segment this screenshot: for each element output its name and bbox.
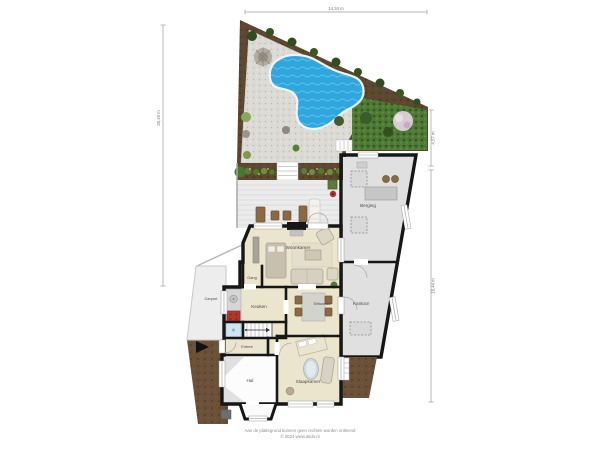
- room-label-hal: Hal: [247, 378, 254, 383]
- light-green-bush: [241, 112, 251, 122]
- hedge-bush: [383, 127, 393, 137]
- skylight-marker: [351, 217, 367, 233]
- armchair: [327, 268, 338, 280]
- sink-drain: [233, 298, 235, 300]
- shelf: [357, 162, 367, 168]
- room-label-carport: Carport: [205, 296, 219, 301]
- room-label-entree: Entree: [241, 344, 252, 349]
- footer-disclaimer: Aan de plattegrond kunnen geen rechten w…: [245, 428, 356, 433]
- gray-plant: [282, 126, 290, 134]
- terrace-chair: [271, 211, 279, 220]
- garden-steps-upper: [336, 140, 352, 151]
- room-label-eetkamer: Eetkamer: [314, 301, 331, 306]
- sofa-pillow: [268, 246, 275, 252]
- carport-floor: [187, 266, 226, 340]
- stool: [392, 176, 399, 183]
- green-bush: [293, 145, 300, 152]
- gray-plant: [242, 130, 250, 138]
- deck-terrace: [237, 180, 341, 228]
- dining-table: [302, 293, 325, 321]
- kantoor-door-gap: [338, 297, 344, 314]
- terrace-chair: [299, 206, 307, 222]
- room-label-woonkamer: Woonkamer: [286, 245, 311, 250]
- dimension-left: 20,49 m: [156, 25, 166, 286]
- bathtub-inner: [306, 361, 316, 377]
- fireplace: [287, 222, 306, 230]
- interior-door-gap: [354, 259, 368, 265]
- room-label-keuken: Keuken: [251, 304, 267, 309]
- flower-center: [332, 193, 334, 195]
- boundary-line: [197, 245, 242, 266]
- shower-wc: [226, 323, 241, 337]
- gravel-bush: [334, 116, 344, 126]
- dimension-left-label: 20,49 m: [156, 110, 161, 126]
- front-door-gap: [219, 340, 225, 353]
- garden-area: [237, 20, 428, 163]
- planter-pot: [328, 180, 337, 189]
- staircase: [243, 322, 272, 338]
- room-label-berging: Berging: [360, 203, 376, 208]
- terrace-chair: [256, 207, 265, 222]
- footer: Aan de plattegrond kunnen geen rechten w…: [245, 428, 356, 439]
- storage-building: Berging Kantoor: [341, 152, 416, 357]
- kitchen-fixtures: [226, 289, 241, 322]
- main-house: Woonkamer Gang Keuken Eetkamer Entree Ha…: [219, 213, 357, 421]
- pouf: [286, 387, 294, 395]
- coffee-table: [305, 250, 321, 260]
- terrace-area: [235, 162, 346, 228]
- room-label-slaapkamer: Slaapkamer: [296, 379, 321, 384]
- floorplan-page: 14,34 m 20,49 m 4,57 m 18,44 m: [0, 0, 600, 450]
- floorplan-svg: 14,34 m 20,49 m 4,57 m 18,44 m: [0, 0, 600, 450]
- dimension-right-upper: 4,57 m: [429, 110, 436, 166]
- dining-chair: [295, 296, 302, 304]
- gang-door-gap: [244, 284, 256, 290]
- skylight-marker: [351, 171, 367, 187]
- terrace-door-gap: [308, 223, 328, 229]
- dimension-top: 14,34 m: [245, 6, 427, 15]
- room-label-gang: Gang: [247, 275, 257, 280]
- dining-chair: [325, 308, 332, 316]
- stool: [383, 176, 390, 183]
- terrace-chair: [283, 211, 291, 220]
- room-opening: [298, 284, 316, 290]
- sofa-pillow: [277, 246, 284, 252]
- bedroom-door-gap: [275, 342, 280, 355]
- yellow-green-bush: [243, 151, 251, 159]
- dimension-right-upper-label: 4,57 m: [431, 131, 436, 145]
- garden-steps-lower: [277, 162, 298, 180]
- hedge-bush: [360, 112, 372, 124]
- footer-copyright: © 2024 www.atido.nl: [280, 434, 319, 439]
- dining-chair: [295, 308, 302, 316]
- sideboard: [253, 237, 259, 263]
- fireplace-hearth: [290, 230, 303, 236]
- shower-drain: [232, 329, 235, 332]
- blossom-tree-icon: [393, 111, 413, 131]
- dimension-right-lower-label: 18,44 m: [431, 278, 436, 294]
- stove: [227, 311, 240, 322]
- kantoor-skylight-marker: [350, 322, 371, 335]
- doorstep: [221, 410, 231, 419]
- dimension-top-label: 14,34 m: [328, 6, 344, 11]
- dimension-right-lower: 18,44 m: [429, 170, 436, 402]
- work-table: [365, 187, 397, 200]
- kitchen-dining-gap: [284, 300, 289, 314]
- bay-window: [240, 404, 276, 421]
